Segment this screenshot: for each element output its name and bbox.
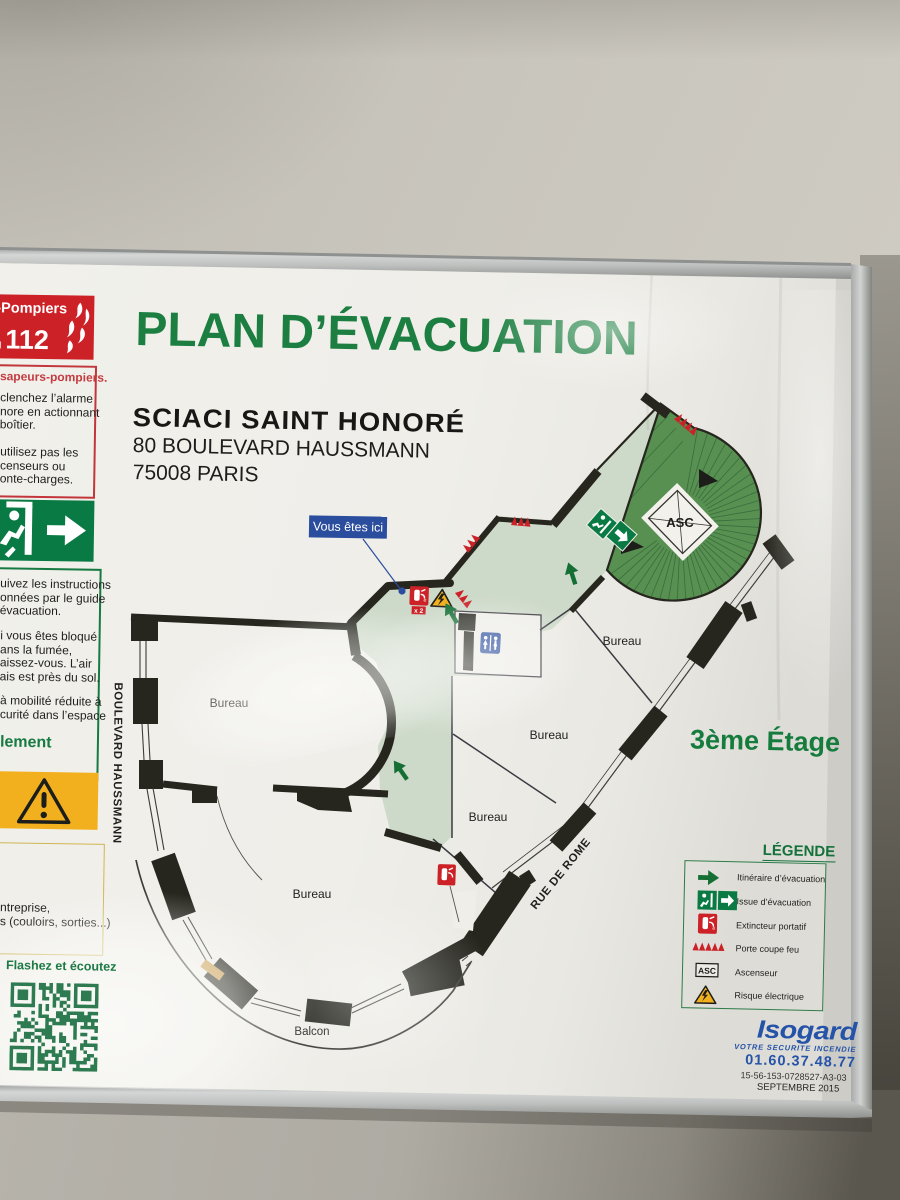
svg-text:e: e [423,597,426,603]
svg-text:ASC: ASC [666,515,694,530]
svg-text:x 2: x 2 [414,608,424,615]
svg-text:e: e [712,926,715,932]
svg-text:ASC: ASC [698,965,716,975]
